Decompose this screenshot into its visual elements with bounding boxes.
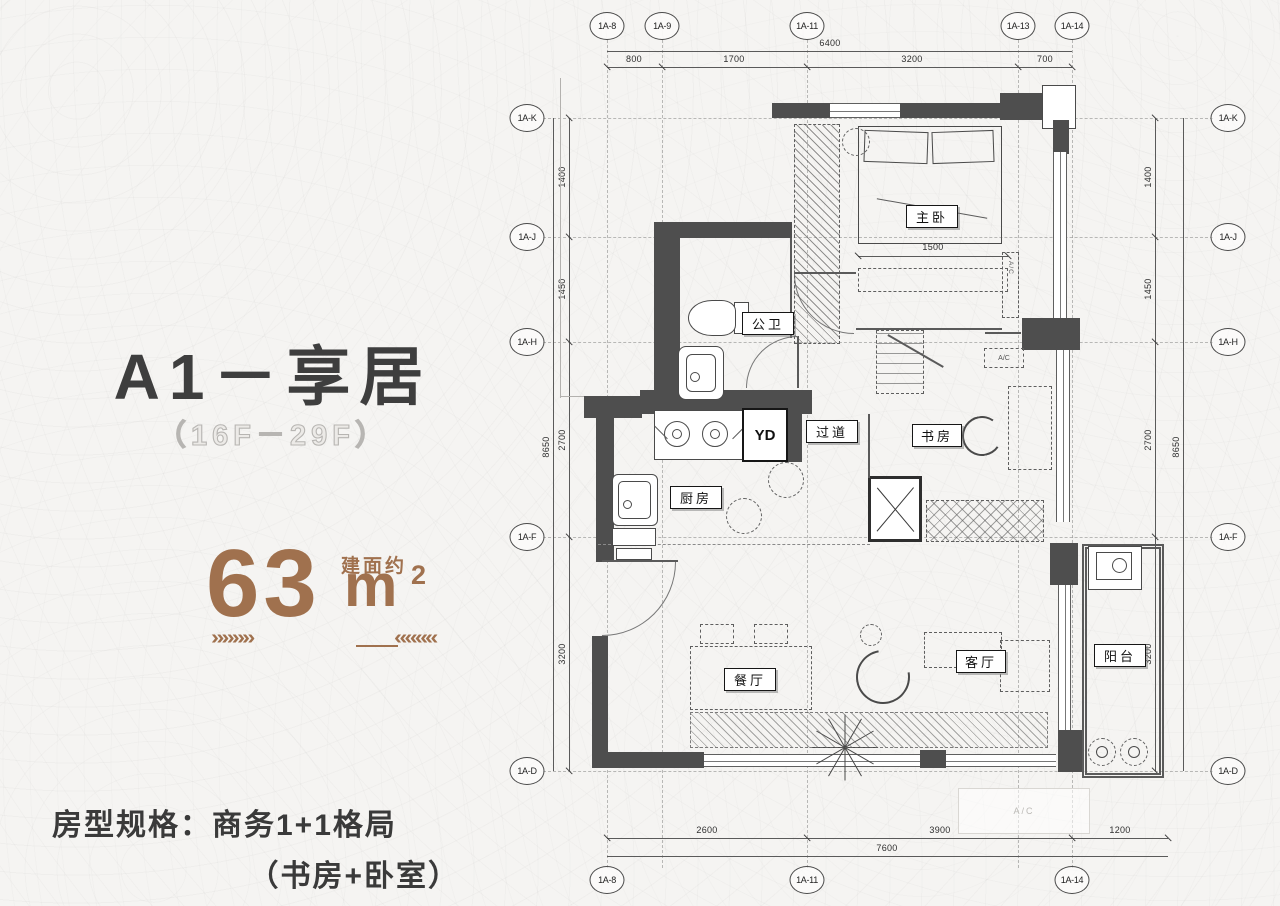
dim-top-seg3: 3200 bbox=[901, 54, 922, 64]
axis-bubble-right-2: 1A-H bbox=[1211, 328, 1246, 356]
axis-bubble-right-1: 1A-J bbox=[1211, 223, 1246, 251]
ac-outdoor-box: A/C bbox=[958, 788, 1090, 834]
axis-bubble-left-2: 1A-H bbox=[510, 328, 545, 356]
study-cabinet bbox=[876, 330, 924, 394]
axis-bubble-left-1: 1A-J bbox=[510, 223, 545, 251]
dim-left-seg3: 2700 bbox=[557, 429, 567, 450]
ac-label: A/C bbox=[1013, 806, 1034, 816]
tv-bench bbox=[690, 712, 1048, 748]
burner-inner bbox=[710, 429, 720, 439]
dim-top-seg2: 1700 bbox=[723, 54, 744, 64]
wall-top bbox=[772, 103, 832, 118]
dim-left-seg2: 1450 bbox=[557, 278, 567, 299]
window-bottom-2 bbox=[946, 754, 1056, 767]
bath-door-arc bbox=[746, 336, 798, 388]
ceiling-fan bbox=[842, 128, 870, 156]
ac-closet: A/C bbox=[1002, 252, 1019, 318]
room-label-balcony: 阳台 bbox=[1094, 644, 1146, 667]
dim-line-right-overall bbox=[1183, 118, 1184, 771]
balcony-plant-inner bbox=[1128, 746, 1140, 758]
yd-box: YD bbox=[742, 408, 788, 462]
dim-top-overall: 6400 bbox=[819, 38, 840, 48]
study-desk bbox=[1008, 386, 1052, 470]
dim-top-seg1: 800 bbox=[626, 54, 642, 64]
wall-bottom-block bbox=[920, 750, 946, 768]
dim-bottom-overall: 7600 bbox=[876, 843, 897, 853]
wall-right-block bbox=[1022, 318, 1080, 350]
gas-meter bbox=[612, 528, 656, 546]
window-top bbox=[830, 103, 902, 118]
dim-left-seg4: 3200 bbox=[557, 643, 567, 664]
dim-bottom-seg1: 2600 bbox=[696, 825, 717, 835]
wall-bottom-right-block bbox=[1058, 730, 1082, 772]
wall-ac-link bbox=[985, 332, 1021, 334]
sink-basin bbox=[618, 481, 651, 519]
dim-line-left-segments bbox=[569, 118, 570, 771]
axis-bubble-left-0: 1A-K bbox=[510, 104, 545, 132]
dim-top-seg4: 700 bbox=[1037, 54, 1053, 64]
entry-door-arc bbox=[602, 562, 676, 636]
axis-bubble-top-1: 1A-9 bbox=[645, 12, 680, 40]
storage-crosshatch bbox=[926, 500, 1044, 542]
dim-right-seg2: 1450 bbox=[1143, 278, 1153, 299]
room-label-corridor: 过道 bbox=[806, 420, 858, 443]
axis-bubble-left-4: 1A-D bbox=[510, 757, 545, 785]
ac-label: A/C bbox=[998, 355, 1010, 362]
room-label-master-bedroom: 主卧 bbox=[906, 205, 958, 228]
floor-plan: 6400 800 1700 3200 700 8650 1400 1450 27… bbox=[0, 0, 1280, 906]
faucet bbox=[623, 500, 632, 509]
window-right-1 bbox=[1053, 152, 1067, 320]
wall-entry-left bbox=[592, 636, 608, 768]
wall-right-upper bbox=[1053, 120, 1069, 154]
dim-bottom-seg2: 3900 bbox=[929, 825, 950, 835]
gas-meter-small bbox=[616, 548, 652, 560]
bedroom-closet-dash bbox=[858, 268, 1008, 292]
study-chair bbox=[959, 413, 1005, 459]
dim-left-overall: 8650 bbox=[541, 436, 551, 457]
dim-line-top-segments bbox=[607, 67, 1072, 68]
ac-box: A/C bbox=[984, 348, 1024, 368]
boundary-line bbox=[560, 396, 586, 397]
room-label-bathroom: 公卫 bbox=[742, 312, 794, 335]
wall-corner-block bbox=[1000, 93, 1042, 120]
dim-line-bottom-overall bbox=[607, 856, 1168, 857]
window-right-2 bbox=[1056, 350, 1070, 522]
dim-bedroom: 1500 bbox=[922, 242, 943, 252]
axis-bubble-left-3: 1A-F bbox=[510, 523, 545, 551]
axis-bubble-top-2: 1A-11 bbox=[790, 12, 825, 40]
dim-line-bottom-segments bbox=[607, 838, 1168, 839]
room-label-dining: 餐厅 bbox=[724, 668, 776, 691]
axis-bubble-right-3: 1A-F bbox=[1211, 523, 1246, 551]
room-label-study: 书房 bbox=[912, 424, 962, 447]
dim-bottom-seg3: 1200 bbox=[1109, 825, 1130, 835]
ac-label: A/C bbox=[1007, 261, 1014, 275]
balcony-door-glass bbox=[1058, 585, 1071, 730]
axis-bubble-bottom-1: 1A-11 bbox=[790, 866, 825, 894]
axis-bubble-top-0: 1A-8 bbox=[590, 12, 625, 40]
kitchen-stool bbox=[768, 462, 804, 498]
wall-balcony-corner bbox=[1050, 543, 1078, 585]
dining-chair bbox=[700, 624, 734, 644]
wall-bottom-left bbox=[592, 752, 704, 768]
burner-inner bbox=[672, 429, 682, 439]
axis-bubble-right-4: 1A-D bbox=[1211, 757, 1246, 785]
axis-bubble-top-3: 1A-13 bbox=[1001, 12, 1036, 40]
wall-corridor-right bbox=[868, 414, 870, 478]
axis-bubble-right-0: 1A-K bbox=[1211, 104, 1246, 132]
boundary-line bbox=[560, 78, 561, 398]
armchair bbox=[845, 639, 920, 714]
dim-line-left-overall bbox=[553, 118, 554, 771]
kitchen-stool bbox=[726, 498, 762, 534]
room-label-living: 客厅 bbox=[956, 650, 1006, 673]
washer-drum bbox=[1112, 558, 1127, 573]
dim-right-overall: 8650 bbox=[1171, 436, 1181, 457]
yd-label: YD bbox=[755, 427, 776, 444]
bedroom-dim-line bbox=[858, 256, 1008, 257]
shaft-box bbox=[868, 476, 922, 542]
axis-bubble-bottom-2: 1A-14 bbox=[1055, 866, 1090, 894]
room-label-kitchen: 厨房 bbox=[670, 486, 722, 509]
side-table bbox=[860, 624, 882, 646]
wall-bath-top bbox=[654, 222, 792, 238]
axis-bubble-bottom-0: 1A-8 bbox=[590, 866, 625, 894]
dining-chair bbox=[754, 624, 788, 644]
sofa-chaise bbox=[1000, 640, 1050, 692]
drain bbox=[690, 372, 700, 382]
axis-grid-line bbox=[543, 118, 1213, 119]
toilet-bowl bbox=[688, 300, 736, 336]
balcony-plant-inner bbox=[1096, 746, 1108, 758]
dim-right-seg1: 1400 bbox=[1143, 166, 1153, 187]
axis-bubble-top-4: 1A-14 bbox=[1055, 12, 1090, 40]
wall-bath-left bbox=[654, 222, 680, 412]
pillow bbox=[931, 130, 994, 164]
pillow bbox=[863, 130, 928, 164]
dim-left-seg1: 1400 bbox=[557, 166, 567, 187]
dim-line-top-overall bbox=[607, 51, 1072, 52]
dim-right-seg3: 2700 bbox=[1143, 429, 1153, 450]
wardrobe-strip bbox=[794, 124, 840, 344]
